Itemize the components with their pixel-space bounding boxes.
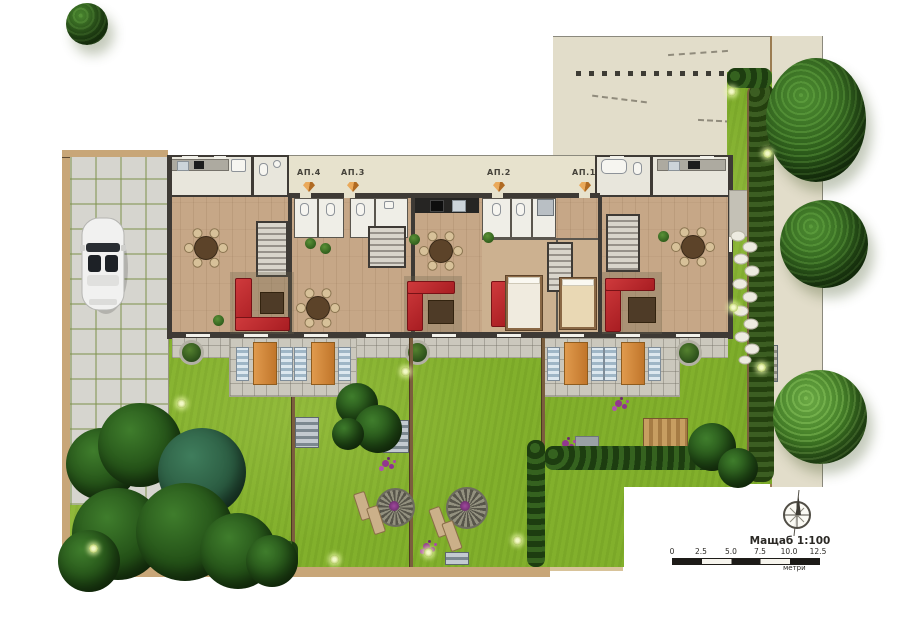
potted-plant-icon <box>213 315 224 326</box>
window <box>304 334 328 337</box>
lounger-orange <box>564 342 588 385</box>
sofa-red <box>407 281 455 294</box>
potted-plant-icon <box>305 238 316 249</box>
dining-table-icon <box>671 225 715 269</box>
kitchen-counter-dark <box>415 198 479 213</box>
bed-pillow <box>562 279 594 286</box>
toilet-icon <box>300 203 309 216</box>
north-arrow-icon <box>778 489 818 537</box>
shrub-planter <box>179 340 204 365</box>
garden-light-icon <box>401 367 410 376</box>
garden-light-icon <box>424 548 433 557</box>
entry-door-gap <box>579 193 590 198</box>
flower-cluster <box>382 460 389 467</box>
interior-wall <box>317 198 319 238</box>
window <box>700 156 714 159</box>
window <box>432 334 456 337</box>
garden-light-icon <box>757 363 766 372</box>
stove-icon <box>194 161 204 169</box>
lounger-blue <box>280 347 293 381</box>
dining-table-icon <box>296 286 340 330</box>
interior-wall <box>650 155 653 197</box>
scale-tick: 12.5 <box>806 547 830 556</box>
window <box>616 334 640 337</box>
bed-pillow <box>508 277 540 284</box>
toilet-icon <box>259 163 268 176</box>
stove-icon <box>688 161 700 169</box>
window <box>186 334 210 337</box>
window <box>560 334 584 337</box>
building-wall-west <box>167 155 172 338</box>
scale-tick: 0 <box>660 547 684 556</box>
lounger-blue <box>294 347 307 381</box>
shrub-planter <box>676 340 702 366</box>
lounger-blue <box>648 347 661 381</box>
circular-patio-center <box>460 501 470 511</box>
bush <box>58 530 120 592</box>
window <box>676 334 700 337</box>
scale-tick: 2.5 <box>689 547 713 556</box>
bed-duvet <box>562 285 594 327</box>
tree <box>766 58 866 182</box>
lounger-blue <box>604 347 617 381</box>
scale-tick: 10.0 <box>777 547 801 556</box>
garden-light-icon <box>763 149 772 158</box>
interior-wall <box>531 198 533 238</box>
interior-wall <box>251 155 254 197</box>
hedge-row <box>727 68 772 88</box>
scale-tick: 5.0 <box>719 547 743 556</box>
potted-plant-icon <box>483 232 494 243</box>
window <box>214 156 226 159</box>
toilet-icon <box>492 203 501 216</box>
apartment-label: АП.4 <box>290 168 328 177</box>
coffee-table <box>260 292 284 314</box>
bush <box>246 535 298 587</box>
potted-plant-icon <box>658 231 669 242</box>
shower-icon <box>537 199 554 216</box>
sun-lounger-group <box>604 342 661 387</box>
window <box>182 156 198 159</box>
window <box>366 334 390 337</box>
garden-steps <box>295 417 319 448</box>
potted-plant-icon <box>320 243 331 254</box>
lounger-orange <box>621 342 645 385</box>
garden-light-icon <box>729 303 738 312</box>
fridge-icon <box>231 159 246 172</box>
tree <box>66 3 108 45</box>
boundary-fence-posts <box>576 71 736 76</box>
scale-unit: метри <box>783 564 806 572</box>
garden-light-icon <box>727 87 736 96</box>
lounger-blue <box>236 347 249 381</box>
washbasin-icon <box>384 201 394 209</box>
staircase <box>606 214 640 272</box>
toilet-icon <box>633 162 642 175</box>
sun-lounger-group <box>294 342 351 387</box>
apartment-label: АП.3 <box>334 168 372 177</box>
toilet-icon <box>326 203 335 216</box>
sink-icon <box>668 161 680 171</box>
circular-patio-center <box>389 501 399 511</box>
bush <box>332 418 364 450</box>
sofa-red <box>235 317 290 331</box>
garden-light-icon <box>89 544 98 553</box>
scale-tick: 7.5 <box>748 547 772 556</box>
sun-lounger-group <box>236 342 293 387</box>
apartment-label: АП.2 <box>480 168 518 177</box>
coffee-table <box>428 300 454 324</box>
lounger-blue <box>338 347 351 381</box>
dining-table-icon <box>419 229 463 273</box>
lounger-blue <box>547 347 560 381</box>
bathtub-icon <box>601 159 627 174</box>
toilet-icon <box>356 203 365 216</box>
lounger-orange <box>311 342 335 385</box>
sofa-red <box>605 278 655 291</box>
window <box>497 334 521 337</box>
tree <box>773 370 867 464</box>
site-plan-canvas: АП.4 АП.3 АП.2 АП.1 Мащаб 1:100 0 2.5 5.… <box>0 0 900 639</box>
garden-light-icon <box>513 536 522 545</box>
bush <box>718 448 758 488</box>
window <box>610 156 624 159</box>
lounger-blue <box>591 347 604 381</box>
potted-plant-icon <box>409 234 420 245</box>
toilet-icon <box>516 203 525 216</box>
sink-icon <box>177 161 189 171</box>
lounger-orange <box>253 342 277 385</box>
picnic-table <box>643 418 688 447</box>
staircase <box>256 221 288 277</box>
coffee-table <box>628 297 656 323</box>
garden-light-icon <box>330 555 339 564</box>
stove-icon <box>430 200 444 212</box>
garden-light-icon <box>177 399 186 408</box>
dining-table-icon <box>184 226 228 270</box>
scale-bar: 0 2.5 5.0 7.5 10.0 12.5 метри <box>671 547 831 573</box>
flower-cluster <box>615 400 622 407</box>
hedge-column <box>527 440 545 567</box>
interior-wall <box>510 198 512 238</box>
garden-steps <box>445 552 469 565</box>
bed-duvet <box>508 283 540 328</box>
sun-lounger-group <box>547 342 604 387</box>
interior-wall <box>482 238 598 240</box>
washbasin-icon <box>273 160 281 168</box>
scale-title: Мащаб 1:100 <box>748 535 832 547</box>
stepping-stone-path <box>727 228 769 366</box>
apartment-label: АП.1 <box>565 168 603 177</box>
car-icon <box>79 215 129 315</box>
staircase <box>368 226 406 268</box>
sink-icon <box>452 200 466 212</box>
tree <box>780 200 868 288</box>
window <box>244 334 268 337</box>
